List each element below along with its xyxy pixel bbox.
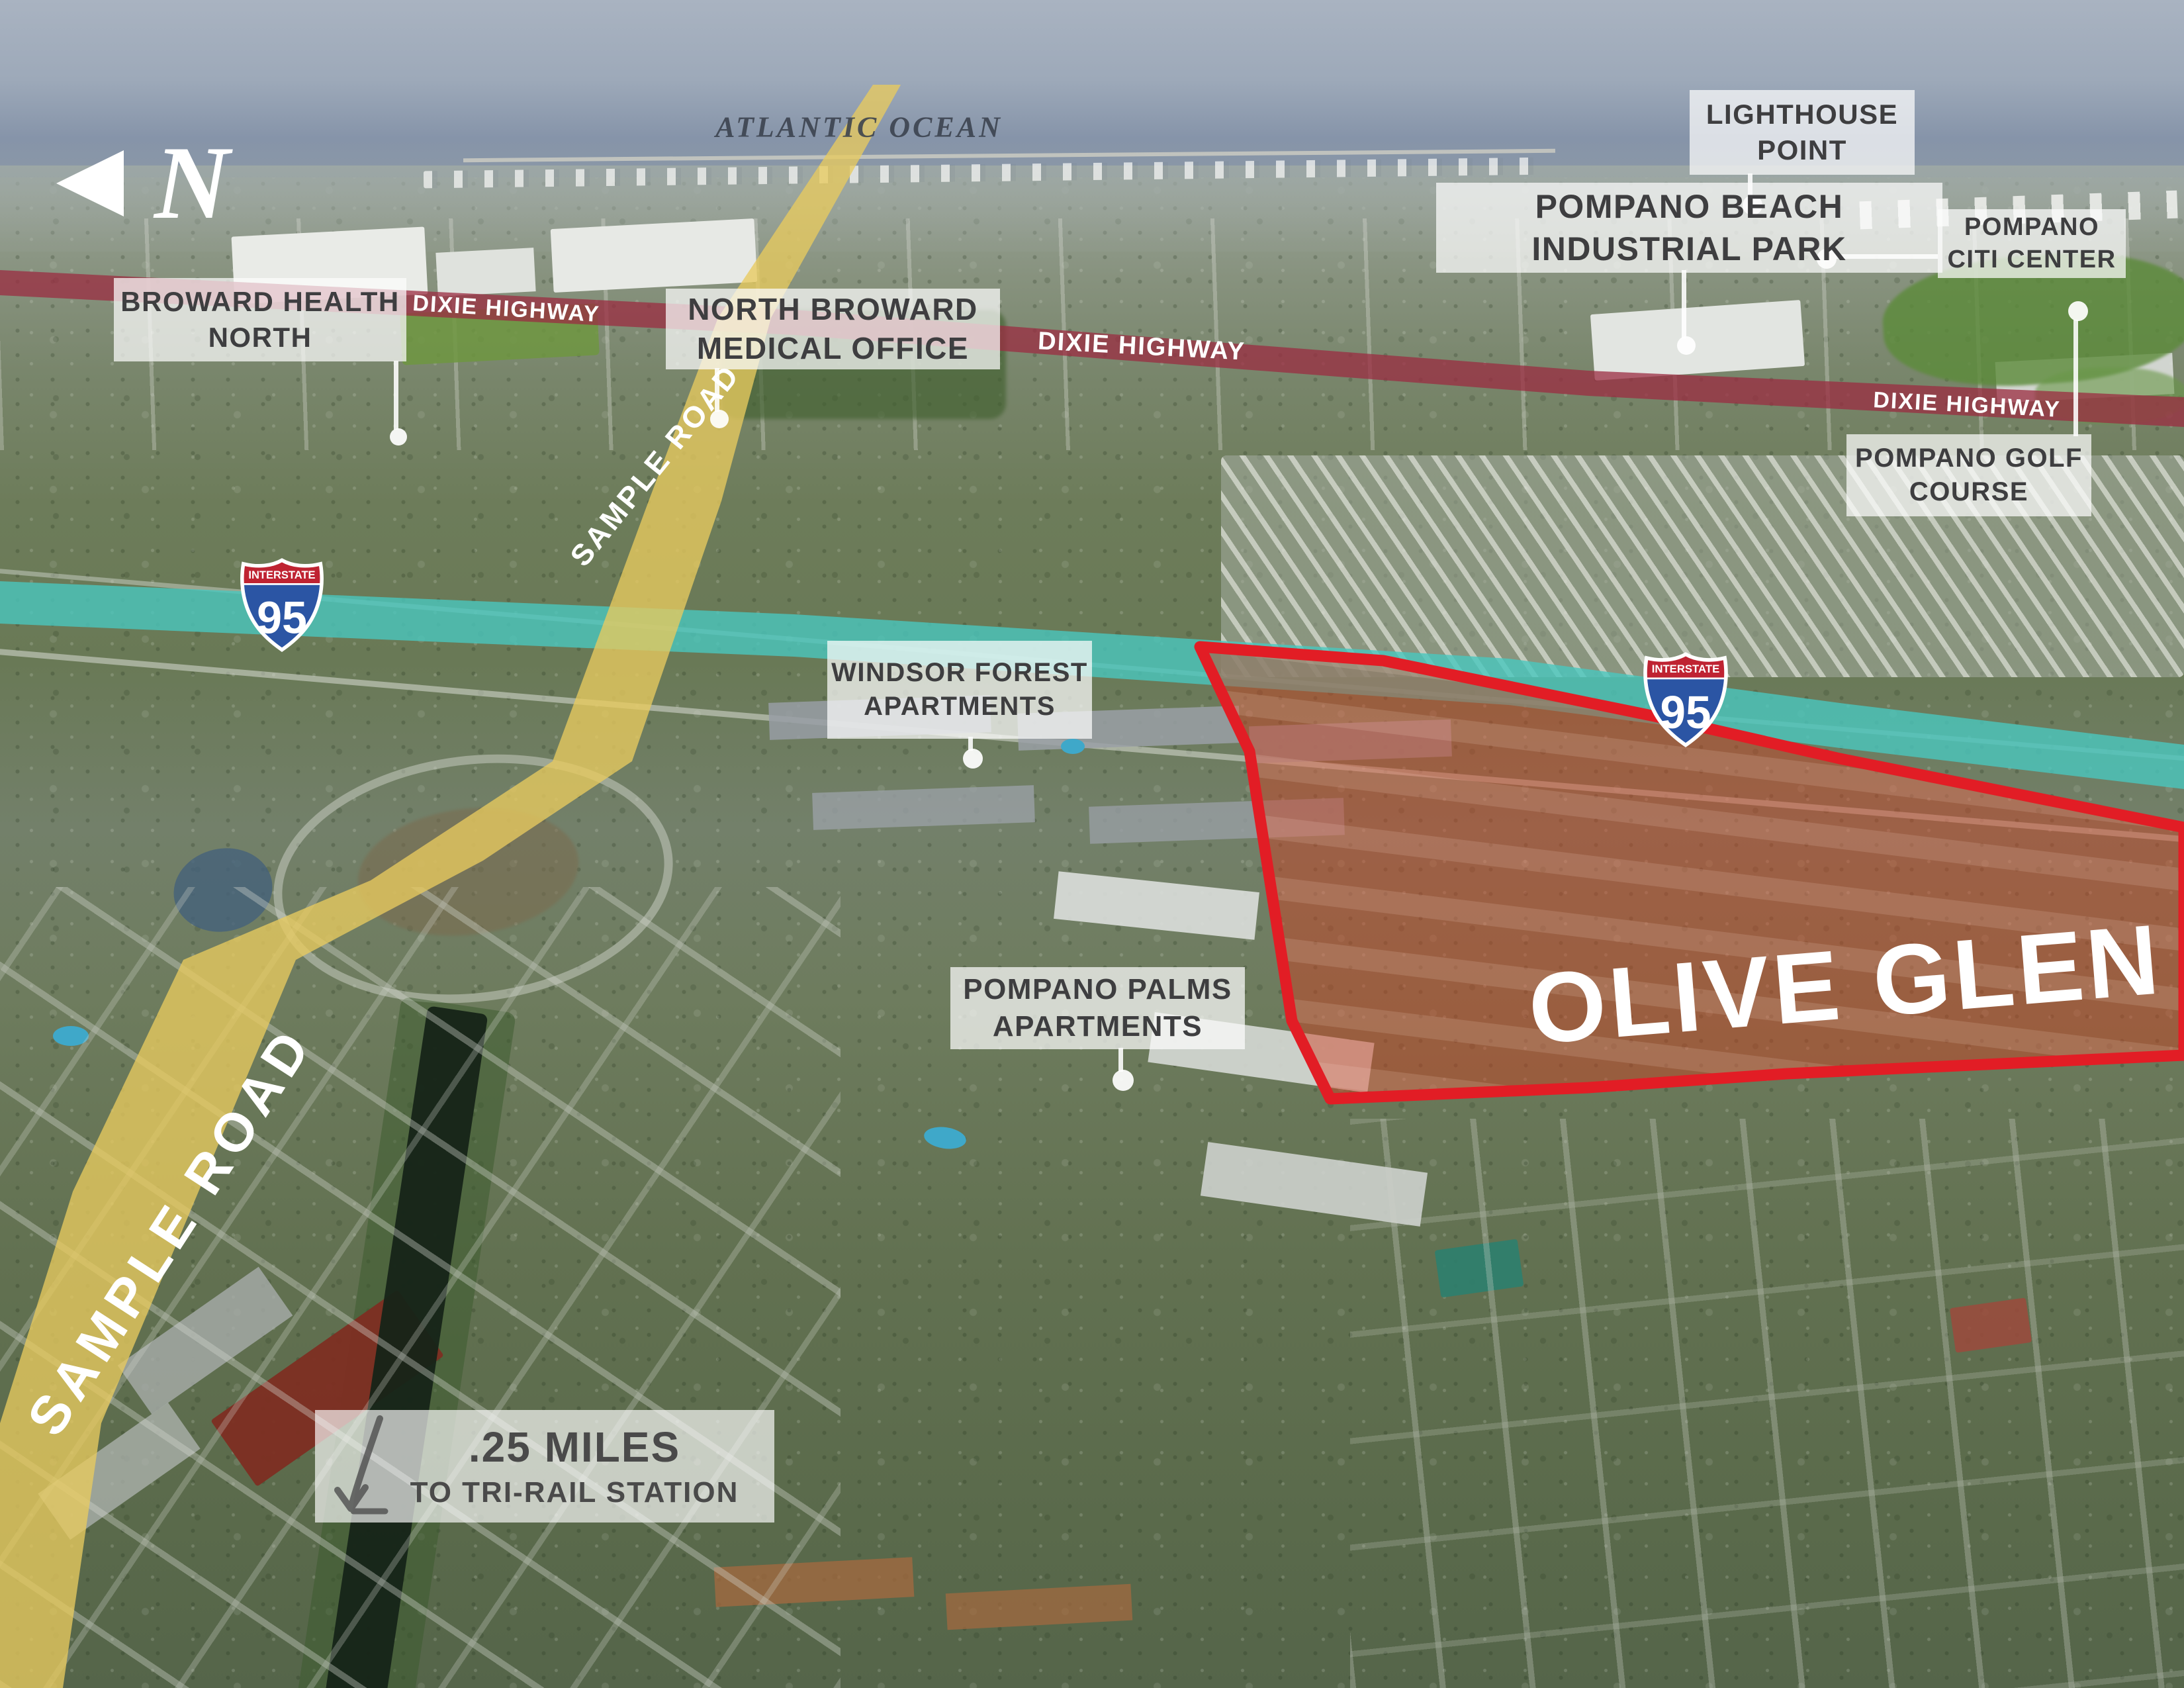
ocean-label: ATLANTIC OCEAN — [715, 111, 1003, 144]
leader-dot — [2068, 301, 2088, 321]
north-label: N — [154, 131, 230, 236]
leader-line — [2073, 320, 2078, 436]
callout-pompano-palms-apartments: POMPANO PALMSAPARTMENTS — [950, 967, 1245, 1049]
aerial-map: N ATLANTIC OCEAN INTERSTATE 95 INTERSTAT… — [0, 0, 2184, 1688]
north-indicator: N — [56, 131, 230, 236]
svg-text:95: 95 — [1661, 686, 1711, 738]
leader-line — [1682, 270, 1686, 338]
callout-windsor-forest-apartments: WINDSOR FORESTAPARTMENTS — [827, 641, 1092, 739]
callout-broward-health-north: BROWARD HEALTHNORTH — [114, 278, 406, 361]
leader-dot — [710, 410, 729, 428]
callout-pompano-citi-center: POMPANOCITI CENTER — [1938, 209, 2126, 278]
callout-north-broward-medical-office: NORTH BROWARDMEDICAL OFFICE — [666, 289, 1000, 369]
leader-dot — [390, 428, 407, 445]
leader-line — [394, 361, 398, 430]
svg-text:INTERSTATE: INTERSTATE — [1652, 663, 1719, 675]
callout-pompano-beach-industrial-park: POMPANO BEACHINDUSTRIAL PARK — [1436, 183, 1942, 273]
i95-shield-icon: INTERSTATE 95 — [1641, 652, 1730, 748]
distance-value: .25 MILES — [469, 1423, 680, 1472]
tri-rail-distance-callout: .25 MILES TO TRI-RAIL STATION — [315, 1410, 774, 1523]
leader-dot — [1113, 1070, 1134, 1091]
leader-line — [1118, 1048, 1123, 1072]
down-left-arrow-icon — [332, 1413, 392, 1519]
i95-shield-icon: INTERSTATE 95 — [238, 558, 326, 653]
leader-line — [715, 368, 719, 412]
svg-text:95: 95 — [257, 592, 307, 643]
distance-target: TO TRI-RAIL STATION — [410, 1476, 739, 1510]
callout-pompano-golf-course: POMPANO GOLFCOURSE — [1846, 434, 2091, 516]
leader-dot — [1677, 336, 1696, 355]
north-arrow-icon — [56, 150, 124, 216]
leader-dot — [963, 749, 983, 769]
svg-text:INTERSTATE: INTERSTATE — [248, 569, 315, 581]
callout-lighthouse-point: LIGHTHOUSEPOINT — [1690, 90, 1915, 175]
